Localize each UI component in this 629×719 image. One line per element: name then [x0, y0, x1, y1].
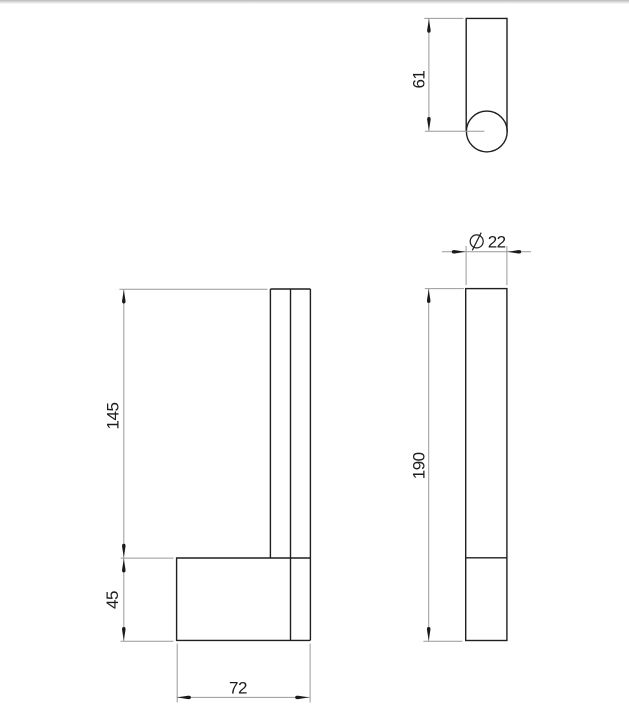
svg-text:72: 72 [229, 679, 247, 698]
svg-text:61: 61 [410, 71, 429, 89]
svg-text:190: 190 [410, 452, 429, 479]
svg-text:145: 145 [104, 403, 123, 430]
svg-text:22: 22 [488, 233, 506, 252]
svg-text:45: 45 [103, 591, 122, 609]
